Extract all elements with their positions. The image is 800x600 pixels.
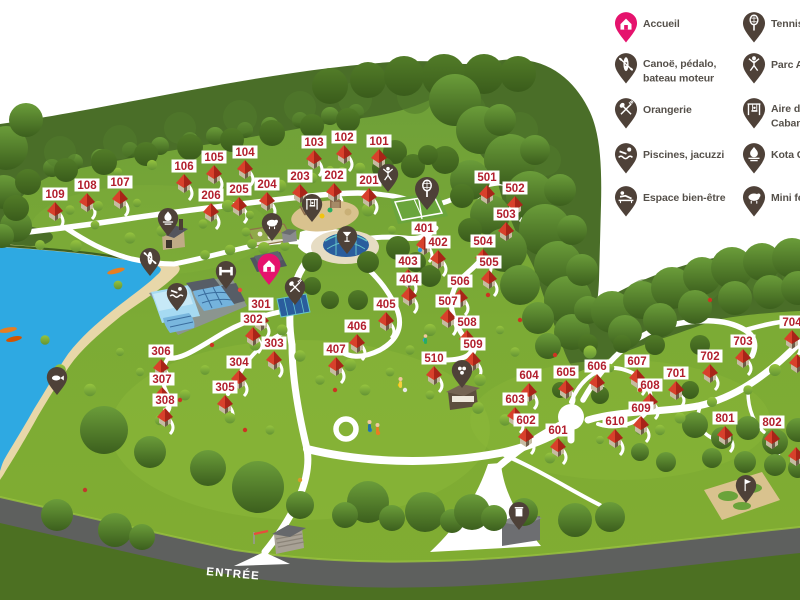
svg-text:104: 104 [235, 147, 255, 159]
svg-text:206: 206 [201, 190, 220, 202]
svg-text:510: 510 [424, 353, 443, 365]
svg-text:Tennis: Tennis [771, 18, 800, 30]
svg-text:301: 301 [251, 299, 271, 311]
svg-text:605: 605 [556, 367, 576, 379]
svg-text:203: 203 [290, 171, 309, 183]
svg-text:Canoë, pédalo,: Canoë, pédalo, [643, 58, 716, 70]
svg-text:609: 609 [631, 403, 650, 415]
svg-text:503: 503 [496, 209, 515, 221]
svg-text:Mini ferme: Mini ferme [771, 192, 800, 204]
svg-text:201: 201 [359, 175, 379, 187]
svg-text:602: 602 [516, 415, 535, 427]
svg-text:606: 606 [587, 361, 606, 373]
svg-text:504: 504 [473, 236, 493, 248]
svg-text:601: 601 [548, 425, 568, 437]
svg-text:304: 304 [229, 357, 249, 369]
svg-text:406: 406 [347, 321, 366, 333]
svg-text:305: 305 [215, 382, 235, 394]
svg-text:Espace bien-être: Espace bien-être [643, 192, 726, 204]
svg-text:101: 101 [369, 136, 389, 148]
svg-text:501: 501 [477, 172, 497, 184]
svg-text:302: 302 [243, 314, 262, 326]
svg-text:202: 202 [324, 170, 343, 182]
svg-text:109: 109 [45, 189, 64, 201]
svg-text:603: 603 [505, 394, 524, 406]
svg-text:704: 704 [782, 317, 800, 329]
svg-text:506: 506 [450, 276, 469, 288]
svg-text:bateau moteur: bateau moteur [643, 73, 714, 85]
svg-text:205: 205 [229, 184, 249, 196]
svg-text:Kota Grill: Kota Grill [771, 149, 800, 161]
svg-text:610: 610 [605, 416, 624, 428]
svg-text:402: 402 [428, 237, 447, 249]
svg-text:105: 105 [204, 152, 224, 164]
svg-text:508: 508 [457, 317, 477, 329]
svg-text:505: 505 [479, 257, 499, 269]
svg-text:407: 407 [326, 344, 345, 356]
svg-text:107: 107 [110, 177, 129, 189]
svg-text:Accueil: Accueil [643, 18, 680, 30]
svg-text:607: 607 [627, 356, 646, 368]
svg-text:102: 102 [334, 132, 353, 144]
svg-text:507: 507 [438, 296, 457, 308]
svg-text:404: 404 [399, 274, 419, 286]
svg-text:Parc Aventure: Parc Aventure [771, 59, 800, 71]
svg-text:403: 403 [398, 256, 417, 268]
svg-text:Cabanes: Cabanes [771, 118, 800, 130]
svg-text:702: 702 [700, 351, 719, 363]
svg-text:306: 306 [151, 346, 170, 358]
svg-text:307: 307 [152, 374, 171, 386]
svg-text:Orangerie: Orangerie [643, 104, 692, 116]
svg-text:106: 106 [174, 161, 193, 173]
svg-text:405: 405 [376, 299, 396, 311]
svg-text:608: 608 [640, 380, 660, 392]
svg-text:Piscines, jacuzzi: Piscines, jacuzzi [643, 149, 724, 161]
svg-text:108: 108 [77, 180, 97, 192]
svg-text:204: 204 [257, 179, 277, 191]
svg-text:401: 401 [414, 223, 434, 235]
svg-text:703: 703 [733, 336, 752, 348]
svg-text:103: 103 [304, 137, 323, 149]
svg-text:509: 509 [463, 339, 482, 351]
svg-text:303: 303 [264, 338, 283, 350]
svg-text:502: 502 [505, 183, 524, 195]
svg-text:604: 604 [519, 370, 539, 382]
svg-text:Aire de jeux,: Aire de jeux, [771, 103, 800, 115]
svg-text:701: 701 [666, 368, 686, 380]
svg-text:802: 802 [762, 417, 781, 429]
svg-text:801: 801 [715, 413, 735, 425]
svg-text:308: 308 [155, 395, 175, 407]
